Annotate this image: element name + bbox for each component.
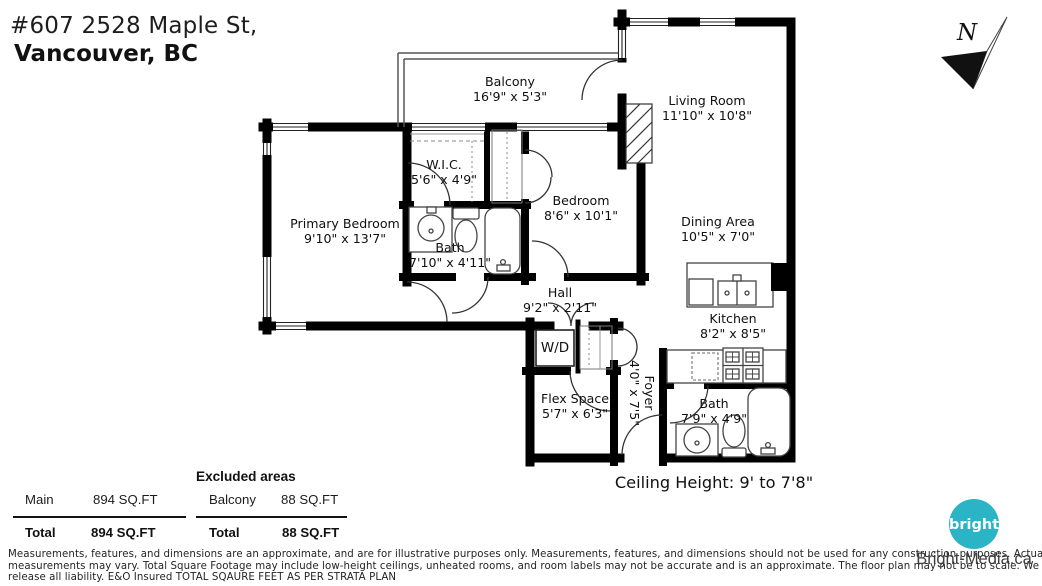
- window: [700, 18, 735, 27]
- excluded-areas-heading: Excluded areas: [196, 469, 296, 484]
- sink-icon: [418, 215, 444, 241]
- main-area-value: 894 SQ.FT: [93, 492, 158, 507]
- window: [263, 257, 272, 317]
- window: [630, 18, 668, 27]
- room-label-foyer: Foyer 4'0" x 7'5": [627, 360, 657, 426]
- sink-icon: [684, 427, 710, 453]
- excluded-total-label: Total: [209, 525, 240, 540]
- room-label-living-room: Living Room 11'10" x 10'8": [662, 93, 752, 123]
- disclaimer-line-1: Measurements, features, and dimensions a…: [8, 549, 1042, 560]
- room-label-hall: Hall 9'2" x 2'11": [523, 285, 597, 315]
- excluded-total-value: 88 SQ.FT: [282, 525, 339, 540]
- floorplan-page: #607 2528 Maple St, Vancouver, BC: [0, 0, 1042, 586]
- bathtub-icon: [748, 388, 790, 456]
- fireplace-icon: [626, 104, 652, 163]
- bath1-door: [452, 277, 488, 313]
- logo-text: bright: [949, 517, 999, 533]
- room-label-balcony: Balcony 16'9" x 5'3": [473, 74, 547, 104]
- laundry-label: W/D: [541, 340, 569, 356]
- table-divider: [196, 516, 347, 518]
- window: [263, 143, 272, 155]
- north-arrow-icon: N: [941, 17, 1007, 89]
- disclaimer-line-2: measurements may vary. Total Square Foot…: [8, 561, 1039, 572]
- window: [618, 30, 627, 58]
- room-label-dining: Dining Area 10'5" x 7'0": [681, 214, 755, 244]
- main-total-label: Total: [25, 525, 56, 540]
- room-label-flex: Flex Space 5'7" x 6'3": [541, 391, 609, 421]
- window: [517, 123, 607, 132]
- room-label-bath1: Bath 7'10" x 4'11": [409, 240, 491, 270]
- main-area-label: Main: [25, 492, 54, 507]
- excluded-area-label: Balcony: [209, 492, 256, 507]
- balcony-door: [582, 60, 622, 100]
- room-label-bedroom: Bedroom 8'6" x 10'1": [544, 193, 618, 223]
- room-label-wic: W.I.C. 5'6" x 4'9": [411, 157, 477, 187]
- linen-closet: [580, 326, 612, 369]
- stove-icon: [723, 348, 763, 383]
- window: [273, 123, 308, 132]
- room-label-primary-bedroom: Primary Bedroom 9'10" x 13'7": [290, 216, 400, 246]
- wall-pillar: [771, 263, 791, 291]
- room-label-bath2: Bath 7'9" x 4'9": [681, 396, 747, 426]
- windows: [263, 18, 736, 331]
- window: [276, 322, 306, 331]
- disclaimer-line-3: release all liability. E&O Insured TOTAL…: [8, 572, 396, 583]
- ceiling-height: Ceiling Height: 9' to 7'8": [615, 473, 813, 492]
- primary-bedroom-door: [407, 282, 447, 322]
- window: [412, 123, 485, 132]
- main-total-value: 894 SQ.FT: [91, 525, 156, 540]
- excluded-area-value: 88 SQ.FT: [281, 492, 338, 507]
- bright-media-logo: bright: [949, 499, 999, 549]
- bedroom-door: [532, 241, 568, 277]
- brand-website: Bright-Media.ca: [912, 550, 1036, 569]
- room-label-kitchen: Kitchen 8'2" x 8'5": [700, 311, 766, 341]
- table-divider: [13, 516, 186, 518]
- north-label: N: [956, 20, 978, 46]
